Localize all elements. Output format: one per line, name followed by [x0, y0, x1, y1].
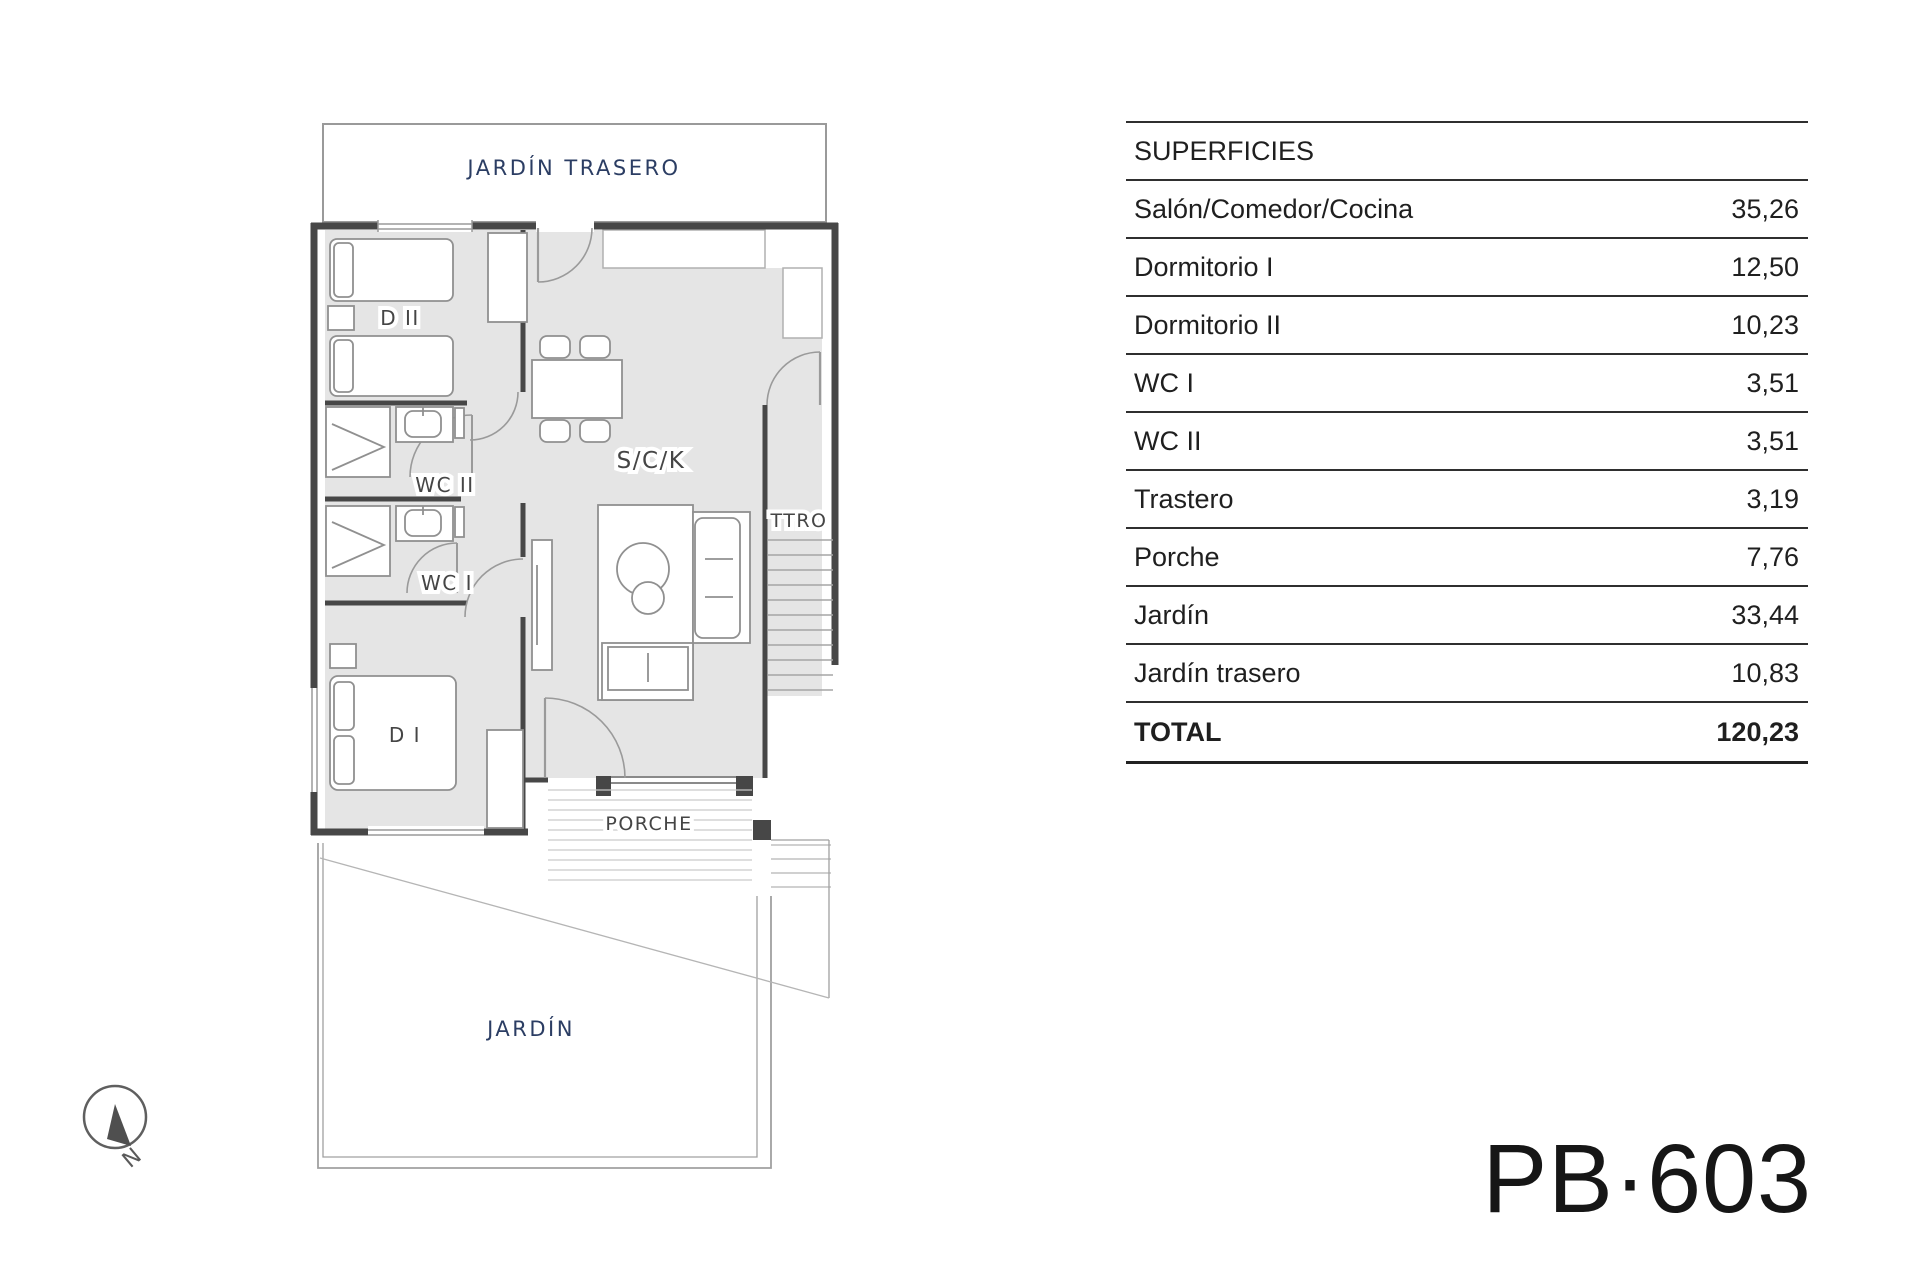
cabinet: [455, 507, 464, 537]
row-label: Salón/Comedor/Cocina: [1134, 194, 1413, 225]
row-value: 10,23: [1731, 310, 1799, 341]
garden-label: JARDÍN: [485, 1016, 575, 1041]
wardrobe: [488, 233, 527, 322]
row-value: 7,76: [1746, 542, 1799, 573]
chair: [580, 336, 610, 358]
rear-garden: JARDÍN TRASERO: [323, 124, 826, 222]
table-row: WC II 3,51: [1126, 413, 1808, 471]
table-row: WC I 3,51: [1126, 355, 1808, 413]
table-row: Dormitorio II 10,23: [1126, 297, 1808, 355]
row-value: 3,51: [1746, 368, 1799, 399]
room-label-d1: D I: [389, 723, 421, 747]
rear-garden-label: JARDÍN TRASERO: [465, 155, 680, 180]
porch-glazing: [597, 777, 740, 783]
table-row: Salón/Comedor/Cocina 35,26: [1126, 181, 1808, 239]
wardrobe: [487, 730, 523, 828]
row-value: 33,44: [1731, 600, 1799, 631]
shower: [326, 407, 390, 477]
row-label: Dormitorio I: [1134, 252, 1274, 283]
room-label-wc2: WC II: [415, 473, 474, 497]
porch-decking: [548, 790, 752, 880]
surfaces-header-label: SUPERFICIES: [1134, 136, 1314, 167]
row-value: 3,19: [1746, 484, 1799, 515]
row-label: Trastero: [1134, 484, 1234, 515]
row-value: 12,50: [1731, 252, 1799, 283]
chair: [540, 336, 570, 358]
north-compass-icon: N: [84, 1086, 147, 1173]
plan-sheet: JARDÍN TRASERO: [0, 0, 1920, 1280]
cabinet: [455, 408, 464, 438]
room-label-ttro: TTRO: [769, 510, 827, 532]
compass-needle: [107, 1104, 131, 1146]
pillow: [334, 340, 353, 392]
room-label-wc1: WC I: [421, 571, 473, 595]
row-label: WC II: [1134, 426, 1202, 457]
chair: [540, 420, 570, 442]
room-label-sck: S/C/K: [617, 448, 686, 474]
row-label: Porche: [1134, 542, 1220, 573]
plan-code: PB·603: [1400, 1126, 1812, 1233]
exterior-steps: [771, 840, 831, 998]
garden-boundary: [318, 843, 829, 1168]
row-label: WC I: [1134, 368, 1194, 399]
total-value: 120,23: [1716, 717, 1799, 748]
sofa-back: [693, 512, 750, 643]
table-row: Trastero 3,19: [1126, 471, 1808, 529]
row-label: Jardín trasero: [1134, 658, 1301, 689]
table-row: Jardín 33,44: [1126, 587, 1808, 645]
row-label: Jardín: [1134, 600, 1209, 631]
table-row: Dormitorio I 12,50: [1126, 239, 1808, 297]
room-label-d2: D II: [380, 306, 420, 330]
row-value: 10,83: [1731, 658, 1799, 689]
pillow: [334, 243, 353, 297]
chair: [580, 420, 610, 442]
total-label: TOTAL: [1134, 717, 1222, 748]
floor-plan: JARDÍN TRASERO: [0, 0, 900, 1280]
pillow: [334, 682, 354, 730]
room-label-porche: PORCHE: [605, 813, 692, 835]
pillow: [334, 736, 354, 784]
surfaces-table: SUPERFICIES Salón/Comedor/Cocina 35,26 D…: [1126, 121, 1808, 764]
row-label: Dormitorio II: [1134, 310, 1281, 341]
dining-table: [532, 360, 622, 418]
nightstand: [328, 306, 354, 330]
garden-diagonal: [320, 858, 829, 998]
nightstand: [330, 644, 356, 668]
row-value: 3,51: [1746, 426, 1799, 457]
side-table: [632, 582, 664, 614]
table-total-row: TOTAL 120,23: [1126, 703, 1808, 764]
table-row: Porche 7,76: [1126, 529, 1808, 587]
surfaces-header: SUPERFICIES: [1126, 123, 1808, 181]
table-row: Jardín trasero 10,83: [1126, 645, 1808, 703]
row-value: 35,26: [1731, 194, 1799, 225]
tv-sideboard: [532, 540, 552, 670]
